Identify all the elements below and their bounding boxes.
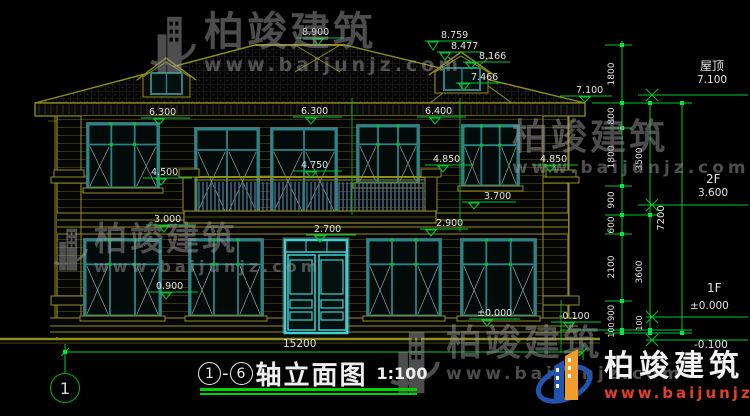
level-label-l0000: ±0.000	[477, 308, 512, 319]
level-label-l6300b: 6.300	[301, 106, 328, 117]
drawing-title: 1 - 6 轴立面图 1:100	[198, 355, 427, 392]
chain-dim: 1800	[607, 145, 617, 168]
window	[80, 239, 165, 322]
chain-dim: 600	[607, 216, 617, 233]
level-label-l0900: 0.900	[156, 281, 183, 292]
story-label: 屋顶	[700, 59, 724, 73]
chain-dim: 3600	[635, 260, 645, 283]
chain-dim: 900	[607, 191, 617, 208]
level-label-l8759: 8.759	[441, 30, 468, 41]
entrance-door	[283, 238, 349, 333]
story-label: 7.100	[697, 74, 727, 86]
title-dash: -	[222, 363, 229, 384]
story-label: 2F	[706, 172, 721, 186]
level-label-l8900: 8.900	[302, 27, 329, 38]
story-label: -0.100	[694, 339, 728, 351]
axis-grid-bubble-1: 1	[50, 373, 80, 403]
title-underline	[200, 388, 417, 391]
chain-dim: 800	[607, 107, 617, 124]
chain-dim: 900	[607, 305, 617, 321]
title-text: 轴立面图	[256, 355, 368, 392]
level-label-l3000: 3.000	[154, 214, 181, 225]
elevation-drawing-canvas: 8.9008.7598.4778.1667.4667.1006.3006.300…	[0, 0, 750, 416]
level-label-l6400: 6.400	[425, 106, 452, 117]
axis-end-bubble: 6	[230, 362, 253, 385]
level-label-l6300a: 6.300	[149, 107, 176, 118]
chain-dim: 100	[607, 322, 616, 337]
elevation-linework: 8.9008.7598.4778.1667.4667.1006.3006.300…	[0, 0, 750, 416]
window	[83, 123, 163, 194]
level-label-l2700: 2.700	[314, 224, 341, 235]
level-label-l4750: 4.750	[301, 160, 328, 171]
level-label-l7100: 7.100	[576, 85, 603, 96]
level-label-l2900: 2.900	[436, 218, 463, 229]
window	[185, 239, 267, 322]
window	[363, 239, 445, 322]
chain-dim: 100	[635, 315, 644, 330]
chain-dim: 1800	[607, 62, 617, 85]
level-label-l8166: 8.166	[479, 51, 506, 62]
level-label-l7466: 7.466	[471, 72, 498, 83]
story-label: 1F	[707, 281, 722, 295]
level-label-l4850a: 4.850	[433, 154, 460, 165]
title-scale: 1:100	[377, 364, 428, 383]
chain-dim: 2100	[607, 255, 617, 278]
window	[458, 125, 523, 192]
level-label-l4850b: 4.850	[540, 154, 567, 165]
title-underline-2	[200, 393, 417, 395]
story-label: 3.600	[698, 187, 728, 199]
level-label-l3700: 3.700	[484, 191, 511, 202]
level-label-l4500: 4.500	[151, 167, 178, 178]
axis-start-bubble: 1	[198, 362, 221, 385]
level-label-l8477: 8.477	[451, 41, 478, 52]
level-label-lm0100: -0.100	[559, 311, 590, 322]
story-label: ±0.000	[690, 300, 729, 312]
dim-15200: 15200	[283, 338, 316, 350]
window	[353, 125, 423, 189]
chain-dim: 3500	[635, 147, 645, 170]
chain-dim: 7200	[656, 205, 667, 230]
